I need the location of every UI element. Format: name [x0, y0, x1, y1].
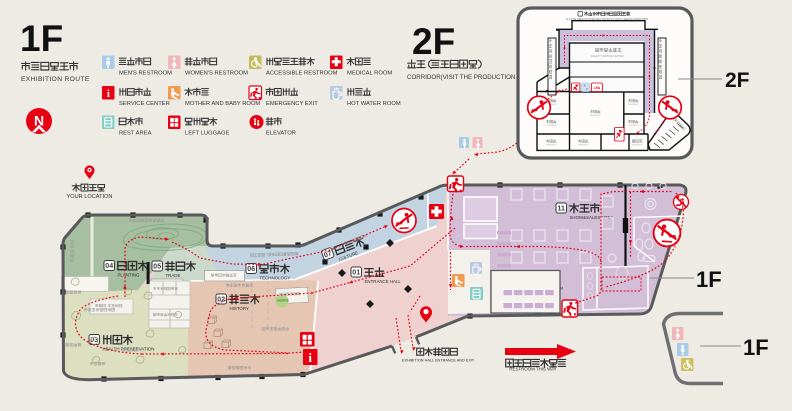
svg-text:SERVICE CENTER: SERVICE CENTER [119, 101, 170, 107]
svg-text:HOT WATER ROOM: HOT WATER ROOM [347, 101, 401, 107]
svg-text:CORRIDOR(VISIT THE PRODUCTION: CORRIDOR(VISIT THE PRODUCTION LINE) [407, 74, 533, 81]
svg-text:HISTORY: HISTORY [230, 306, 249, 311]
svg-text:WOMEN'S RESTROOM: WOMEN'S RESTROOM [185, 71, 248, 77]
svg-text:01: 01 [352, 270, 360, 277]
svg-text:QUALITY CONTROL CENTER: QUALITY CONTROL CENTER [591, 55, 624, 58]
svg-text:05: 05 [153, 264, 161, 271]
svg-text:TRADE: TRADE [166, 273, 181, 278]
svg-text:RESTROOM THIS WAY: RESTROOM THIS WAY [509, 367, 556, 372]
svg-text:2F: 2F [725, 69, 750, 92]
svg-text:MEDICAL ROOM: MEDICAL ROOM [347, 71, 392, 77]
svg-text:EMERGENCY EXIT: EMERGENCY EXIT [266, 101, 318, 107]
svg-text:EXHIBITION ROUTE: EXHIBITION ROUTE [21, 76, 90, 83]
svg-text:WORKSHOP: WORKSHOP [546, 145, 557, 147]
svg-text:1F: 1F [743, 335, 769, 360]
svg-text:11: 11 [557, 206, 565, 213]
svg-text:EXHIBITION HALL ENTRANCE AND E: EXHIBITION HALL ENTRANCE AND EXIT [402, 359, 475, 363]
svg-text:WORKSHOP: WORKSHOP [628, 104, 639, 106]
svg-text:1F: 1F [696, 267, 722, 292]
svg-text:WORKSHOP: WORKSHOP [628, 125, 639, 127]
svg-text:i: i [107, 88, 110, 100]
svg-text:ELEVATOR: ELEVATOR [266, 131, 296, 137]
svg-text:YOUR LOCATION: YOUR LOCATION [67, 194, 113, 200]
svg-text:ACCESSIBLE RESTROOM: ACCESSIBLE RESTROOM [266, 71, 338, 77]
svg-text:TECHNOLOGY: TECHNOLOGY [260, 276, 291, 281]
svg-text:2F: 2F [412, 21, 455, 62]
svg-text:WORKSHOP: WORKSHOP [578, 145, 589, 147]
svg-text:02: 02 [217, 297, 225, 304]
svg-text:LRA: LRA [594, 86, 601, 90]
svg-text:04: 04 [105, 263, 113, 270]
svg-text:MOTHER AND BABY ROOM: MOTHER AND BABY ROOM [185, 101, 260, 107]
svg-text:HEALTH PRESERVATION: HEALTH PRESERVATION [103, 347, 155, 352]
svg-text:WORKSHOP: WORKSHOP [632, 145, 643, 147]
svg-text:i: i [308, 350, 312, 365]
svg-text:LEFT LUGGAGE: LEFT LUGGAGE [185, 131, 229, 137]
svg-text:MEN'S RESTROOM: MEN'S RESTROOM [119, 71, 172, 77]
svg-text:WORKSHOP: WORKSHOP [546, 125, 557, 127]
svg-text:1F: 1F [20, 18, 63, 59]
svg-text:WORKSHOP: WORKSHOP [590, 115, 601, 117]
svg-text:PLANTING: PLANTING [118, 273, 141, 278]
svg-text:06: 06 [247, 266, 255, 273]
svg-text:ENTRANCE HALL: ENTRANCE HALL [365, 279, 402, 284]
svg-text:REST AREA: REST AREA [119, 131, 152, 137]
